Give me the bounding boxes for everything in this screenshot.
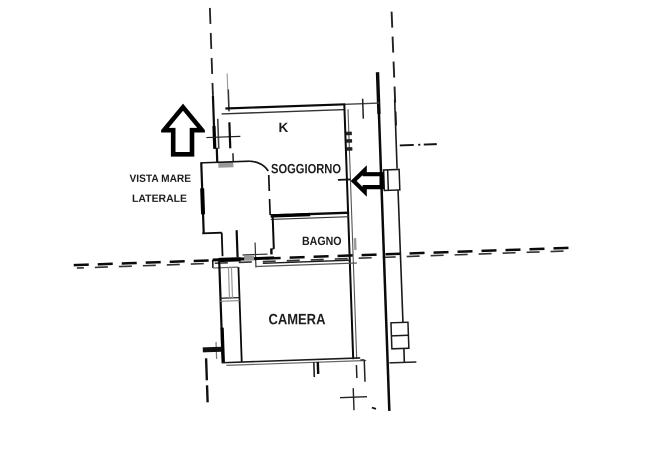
svg-text:SOGGIORNO: SOGGIORNO	[271, 161, 341, 176]
svg-text:VISTA MARE: VISTA MARE	[130, 173, 192, 185]
svg-text:LATERALE: LATERALE	[132, 193, 187, 205]
svg-text:K: K	[279, 120, 289, 135]
svg-text:CAMERA: CAMERA	[268, 311, 325, 328]
svg-text:BAGNO: BAGNO	[302, 234, 342, 248]
